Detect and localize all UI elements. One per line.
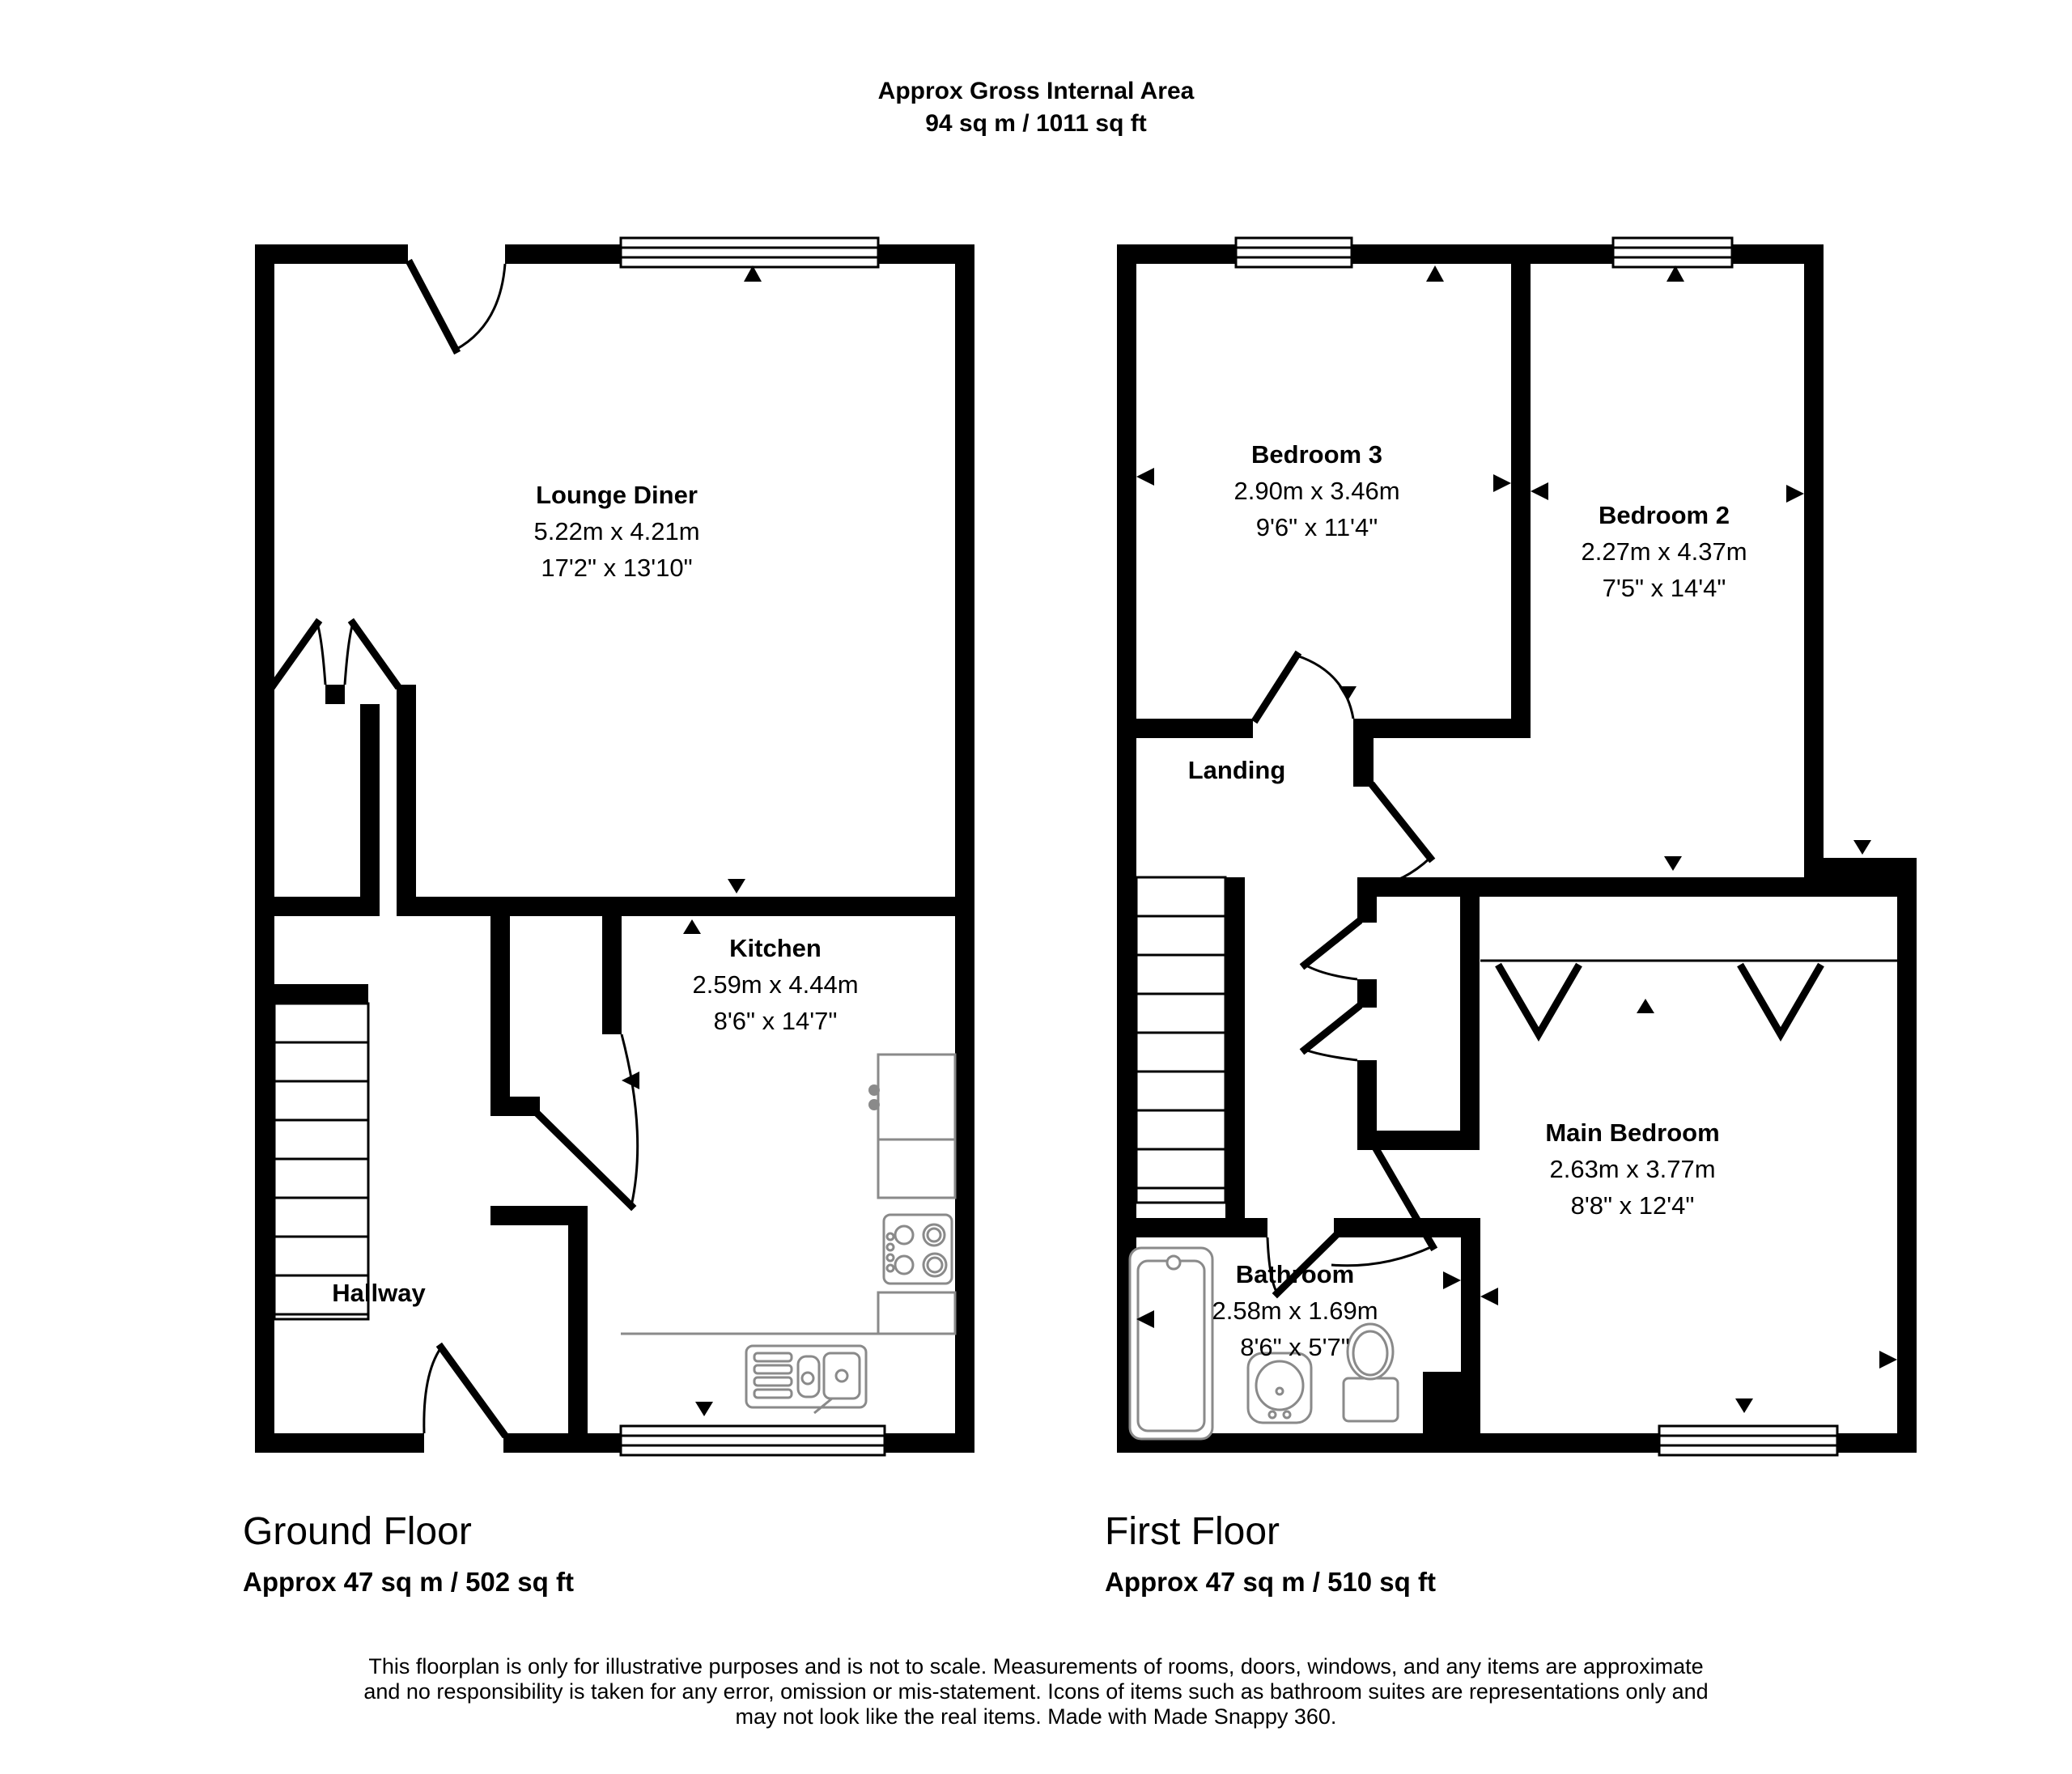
- door-leaf-icon: [1305, 1008, 1357, 1050]
- wall: [1357, 877, 1897, 897]
- viewpoint-arrow-icon: [1853, 840, 1871, 855]
- wall: [1357, 897, 1377, 923]
- room-label-hallway: Hallway: [332, 1279, 426, 1307]
- wall: [255, 685, 274, 704]
- wall: [255, 1433, 424, 1453]
- wall: [1460, 897, 1480, 1150]
- wall: [885, 1433, 974, 1453]
- wall: [490, 1206, 588, 1225]
- wall: [1117, 719, 1253, 738]
- viewpoint-arrow-icon: [683, 919, 701, 934]
- kitchen-counter-icon: [621, 1055, 955, 1334]
- room-dim-imperial: 7'5" x 14'4": [1603, 574, 1726, 602]
- wall: [1334, 1218, 1480, 1237]
- door-leaf-icon: [540, 1116, 631, 1206]
- room-dim-imperial: 8'8" x 12'4": [1571, 1191, 1695, 1220]
- disclaimer-line: may not look like the real items. Made w…: [736, 1704, 1337, 1729]
- viewpoint-arrow-icon: [1735, 1398, 1753, 1413]
- wall: [1353, 738, 1374, 787]
- viewpoint-arrow-icon: [1879, 1351, 1897, 1369]
- disclaimer-line: This floorplan is only for illustrative …: [368, 1654, 1703, 1679]
- wall: [602, 916, 622, 1034]
- hob-icon: [884, 1215, 952, 1284]
- wall: [1357, 979, 1377, 1008]
- first-floor-label: First Floor: [1105, 1510, 1280, 1553]
- wardrobe-icon: [1480, 961, 1897, 1034]
- room-label-main-bedroom: Main Bedroom: [1545, 1118, 1719, 1147]
- wall: [397, 897, 974, 916]
- room-label-lounge: Lounge Diner: [536, 481, 698, 509]
- room-dim-metric: 2.59m x 4.44m: [692, 970, 858, 999]
- room-dim-metric: 2.27m x 4.37m: [1581, 537, 1747, 566]
- wall: [1117, 244, 1236, 264]
- wall: [490, 1097, 540, 1116]
- viewpoint-arrow-icon: [1531, 482, 1548, 500]
- ground-floor-area: Approx 47 sq m / 502 sq ft: [243, 1567, 574, 1597]
- staircase-icon: [1136, 877, 1245, 1218]
- wall: [503, 1433, 621, 1453]
- wall: [490, 916, 510, 1097]
- viewpoint-arrow-icon: [1493, 474, 1511, 492]
- wall: [325, 685, 345, 704]
- disclaimer-line: and no responsibility is taken for any e…: [363, 1679, 1708, 1704]
- basin-icon: [1248, 1353, 1311, 1423]
- wall: [1136, 1218, 1267, 1237]
- room-dim-imperial: 8'6" x 14'7": [714, 1007, 838, 1035]
- page-title: Approx Gross Internal Area: [878, 78, 1195, 104]
- wall: [255, 897, 380, 916]
- viewpoint-arrow-icon: [1480, 1288, 1498, 1305]
- wall: [255, 244, 274, 1453]
- viewpoint-arrow-icon: [1637, 999, 1654, 1013]
- wall: [955, 244, 974, 1453]
- room-dim-metric: 2.58m x 1.69m: [1212, 1297, 1378, 1325]
- door-arc-icon: [345, 623, 353, 685]
- window-icon: [1613, 238, 1732, 267]
- room-label-bedroom2: Bedroom 2: [1599, 501, 1730, 529]
- wall: [1837, 1433, 1917, 1453]
- bathtub-icon: [1130, 1248, 1212, 1439]
- room-label-landing: Landing: [1188, 756, 1286, 784]
- door-leaf-icon: [353, 623, 397, 685]
- door-leaf-icon: [1256, 656, 1297, 719]
- door-arc-icon: [622, 1034, 638, 1206]
- room-dim-imperial: 9'6" x 11'4": [1256, 513, 1378, 541]
- viewpoint-arrow-icon: [1664, 856, 1682, 871]
- wall: [878, 244, 974, 264]
- window-icon: [621, 1426, 885, 1455]
- door-arc-icon: [1305, 1050, 1357, 1060]
- door-arc-icon: [1305, 965, 1357, 979]
- wall: [1353, 719, 1527, 738]
- viewpoint-arrow-icon: [1339, 686, 1357, 701]
- room-dim-imperial: 8'6" x 5'7": [1240, 1333, 1350, 1361]
- door-arc-icon: [456, 264, 505, 350]
- sink-icon: [746, 1346, 866, 1413]
- viewpoint-arrow-icon: [1426, 265, 1444, 282]
- room-dim-metric: 2.90m x 3.46m: [1233, 477, 1399, 505]
- door-leaf-icon: [1374, 787, 1430, 858]
- wall: [255, 244, 408, 264]
- viewpoint-arrow-icon: [1136, 468, 1154, 486]
- first-floor-plan: Bedroom 3 2.90m x 3.46m 9'6" x 11'4" Bed…: [1117, 238, 1917, 1455]
- room-label-bedroom3: Bedroom 3: [1251, 440, 1382, 469]
- viewpoint-arrow-icon: [1786, 485, 1804, 503]
- viewpoint-arrow-icon: [728, 879, 745, 893]
- window-icon: [621, 238, 878, 267]
- toilet-icon: [1344, 1324, 1398, 1421]
- door-leaf-icon: [274, 623, 317, 685]
- room-label-kitchen: Kitchen: [729, 934, 822, 962]
- room-dim-metric: 2.63m x 3.77m: [1549, 1155, 1715, 1183]
- wall: [1352, 244, 1613, 264]
- door-leaf-icon: [441, 1347, 503, 1433]
- page-subtitle: 94 sq m / 1011 sq ft: [925, 110, 1146, 137]
- wall: [505, 244, 621, 264]
- wall: [1897, 858, 1917, 1453]
- viewpoint-arrow-icon: [1443, 1271, 1461, 1289]
- door-arc-icon: [424, 1347, 441, 1433]
- wall: [1423, 1372, 1480, 1453]
- room-dim-imperial: 17'2" x 13'10": [541, 554, 692, 582]
- window-icon: [1236, 238, 1352, 267]
- wall: [1357, 1060, 1377, 1131]
- door-leaf-icon: [410, 264, 456, 350]
- wall: [360, 704, 380, 897]
- window-icon: [1659, 1426, 1837, 1455]
- floorplan-canvas: Approx Gross Internal Area 94 sq m / 101…: [0, 0, 2072, 1774]
- wall: [397, 685, 416, 916]
- wall: [1804, 244, 1824, 877]
- viewpoint-arrow-icon: [695, 1402, 713, 1416]
- ground-floor-label: Ground Floor: [243, 1510, 472, 1553]
- door-leaf-icon: [1305, 923, 1357, 965]
- door-arc-icon: [317, 623, 325, 685]
- wall: [1461, 1237, 1480, 1372]
- ground-floor-plan: Lounge Diner 5.22m x 4.21m 17'2" x 13'10…: [255, 238, 974, 1455]
- wall: [568, 1225, 588, 1433]
- room-label-bathroom: Bathroom: [1236, 1260, 1354, 1288]
- first-floor-area: Approx 47 sq m / 510 sq ft: [1105, 1567, 1436, 1597]
- room-dim-metric: 5.22m x 4.21m: [533, 517, 699, 545]
- wall: [1511, 244, 1531, 738]
